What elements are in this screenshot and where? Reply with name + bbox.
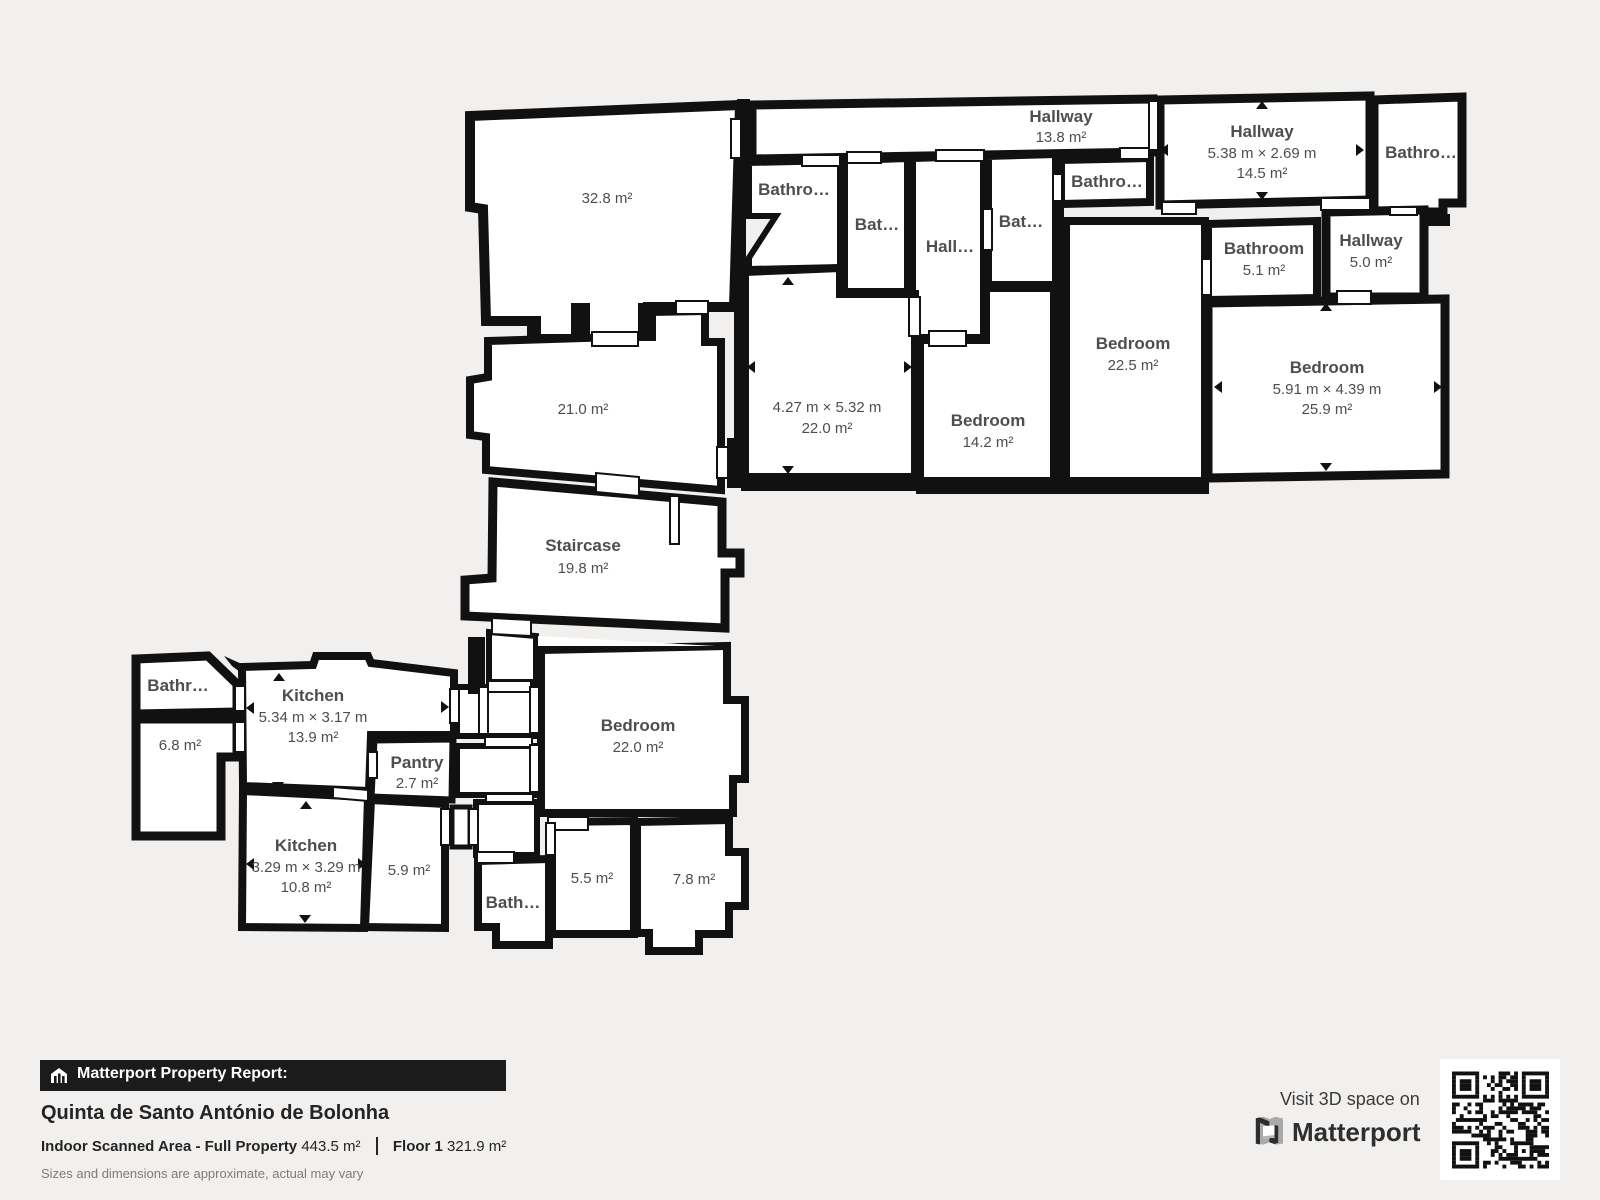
svg-text:10.8 m²: 10.8 m²	[281, 879, 332, 896]
svg-text:7.8 m²: 7.8 m²	[673, 871, 716, 888]
svg-text:Staircase: Staircase	[545, 536, 621, 555]
svg-text:22.5 m²: 22.5 m²	[1108, 357, 1159, 374]
svg-text:5.0 m²: 5.0 m²	[1350, 254, 1393, 271]
svg-text:Bathr…: Bathr…	[147, 676, 208, 695]
svg-text:Hall…: Hall…	[926, 237, 974, 256]
svg-text:2.7 m²: 2.7 m²	[396, 775, 439, 792]
svg-text:22.0 m²: 22.0 m²	[802, 420, 853, 437]
svg-text:Hallway: Hallway	[1230, 122, 1294, 141]
svg-text:Bedroom: Bedroom	[1096, 334, 1171, 353]
svg-text:25.9 m²: 25.9 m²	[1302, 401, 1353, 418]
svg-text:14.2 m²: 14.2 m²	[963, 434, 1014, 451]
svg-text:Bathro…: Bathro…	[1385, 143, 1457, 162]
svg-text:4.27 m × 5.32 m: 4.27 m × 5.32 m	[773, 399, 882, 416]
svg-text:13.8 m²: 13.8 m²	[1036, 129, 1087, 146]
svg-text:Bedroom: Bedroom	[1290, 358, 1365, 377]
svg-text:5.38 m × 2.69 m: 5.38 m × 2.69 m	[1208, 145, 1317, 162]
svg-text:Bat…: Bat…	[999, 212, 1043, 231]
svg-text:Bath…: Bath…	[486, 893, 541, 912]
svg-text:Bathro…: Bathro…	[1071, 172, 1143, 191]
svg-text:5.5 m²: 5.5 m²	[571, 870, 614, 887]
svg-text:Hallway: Hallway	[1029, 107, 1093, 126]
svg-text:Bathro…: Bathro…	[758, 180, 830, 199]
svg-text:Bathroom: Bathroom	[1224, 239, 1304, 258]
svg-text:Bedroom: Bedroom	[601, 716, 676, 735]
svg-text:5.9 m²: 5.9 m²	[388, 862, 431, 879]
svg-text:Hallway: Hallway	[1339, 231, 1403, 250]
svg-text:5.34 m × 3.17 m: 5.34 m × 3.17 m	[259, 709, 368, 726]
svg-text:Kitchen: Kitchen	[275, 836, 337, 855]
svg-text:14.5 m²: 14.5 m²	[1237, 165, 1288, 182]
svg-text:5.1 m²: 5.1 m²	[1243, 262, 1286, 279]
svg-text:3.29 m × 3.29 m: 3.29 m × 3.29 m	[252, 859, 361, 876]
svg-text:5.91 m × 4.39 m: 5.91 m × 4.39 m	[1273, 381, 1382, 398]
svg-text:Bedroom: Bedroom	[951, 411, 1026, 430]
svg-text:13.9 m²: 13.9 m²	[288, 729, 339, 746]
svg-text:21.0 m²: 21.0 m²	[558, 401, 609, 418]
svg-text:Kitchen: Kitchen	[282, 686, 344, 705]
svg-text:6.8 m²: 6.8 m²	[159, 737, 202, 754]
svg-text:32.8 m²: 32.8 m²	[582, 190, 633, 207]
svg-text:Bat…: Bat…	[855, 215, 899, 234]
svg-text:22.0 m²: 22.0 m²	[613, 739, 664, 756]
svg-text:19.8 m²: 19.8 m²	[558, 560, 609, 577]
svg-text:Pantry: Pantry	[391, 753, 444, 772]
